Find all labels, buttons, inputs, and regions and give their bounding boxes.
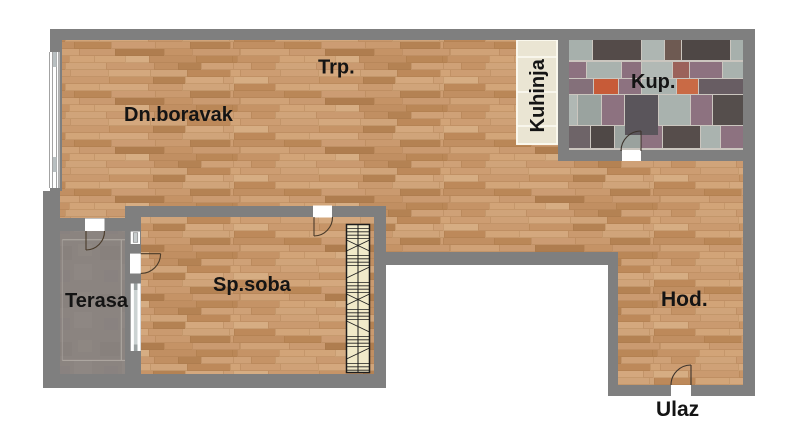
svg-text:Kup.: Kup.	[631, 71, 675, 93]
svg-text:Dn.boravak: Dn.boravak	[124, 104, 234, 126]
svg-text:Terasa: Terasa	[65, 290, 129, 312]
svg-text:Trp.: Trp.	[318, 57, 355, 79]
svg-text:Sp.soba: Sp.soba	[213, 274, 292, 296]
svg-text:Hod.: Hod.	[661, 288, 708, 311]
svg-text:Ulaz: Ulaz	[656, 398, 699, 421]
svg-text:Kuhinja: Kuhinja	[527, 58, 549, 132]
